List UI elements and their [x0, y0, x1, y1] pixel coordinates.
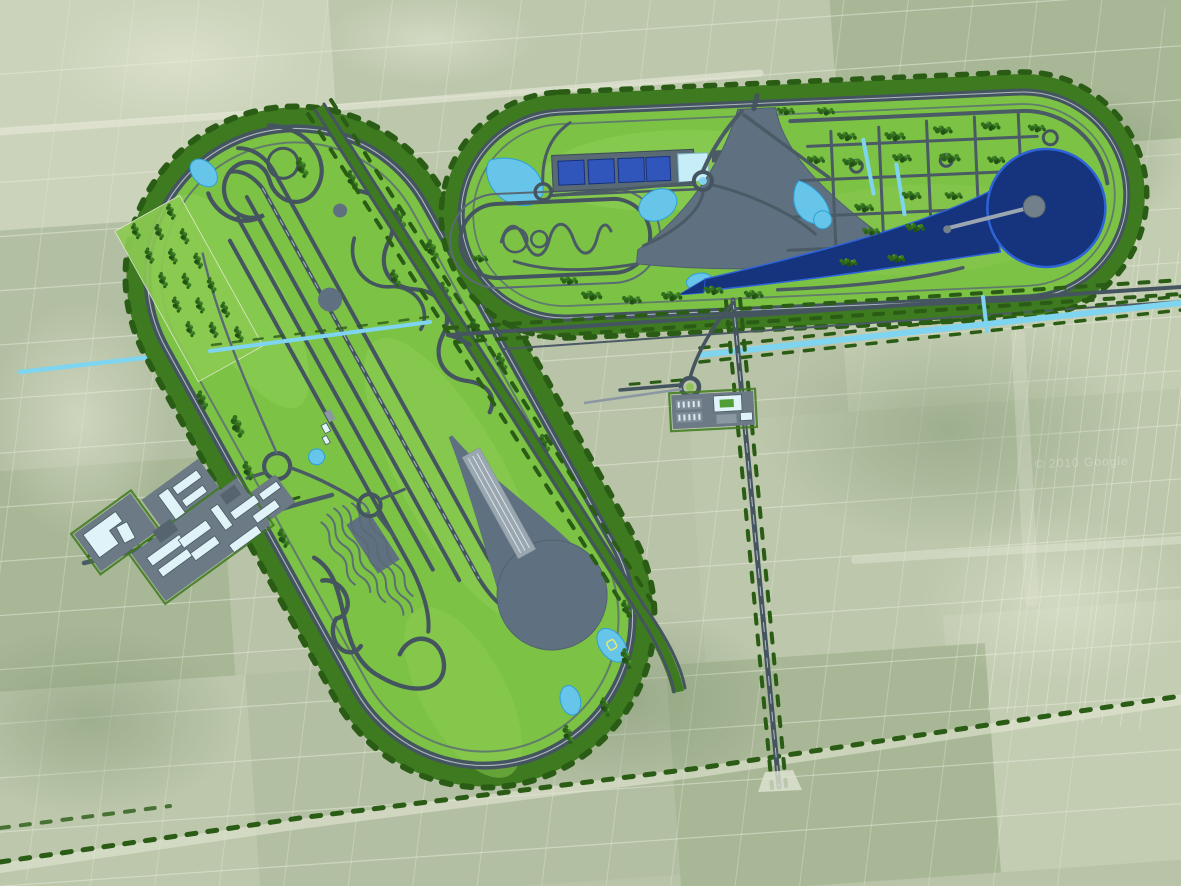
- solar-roof-building: [588, 159, 615, 184]
- pier-island: [1023, 195, 1046, 218]
- solar-roof-building: [618, 158, 645, 183]
- courtyard: [720, 399, 734, 408]
- pond: [813, 210, 832, 229]
- site-plan-svg: © 2010 Google: [0, 0, 1181, 886]
- aerial-masterplan: © 2010 Google: [0, 0, 1181, 886]
- gate-building: [740, 412, 752, 421]
- solar-roof-building: [558, 160, 585, 185]
- solar-roof-building: [646, 156, 671, 181]
- roundabout-center: [686, 383, 694, 391]
- gate-building: [716, 414, 736, 424]
